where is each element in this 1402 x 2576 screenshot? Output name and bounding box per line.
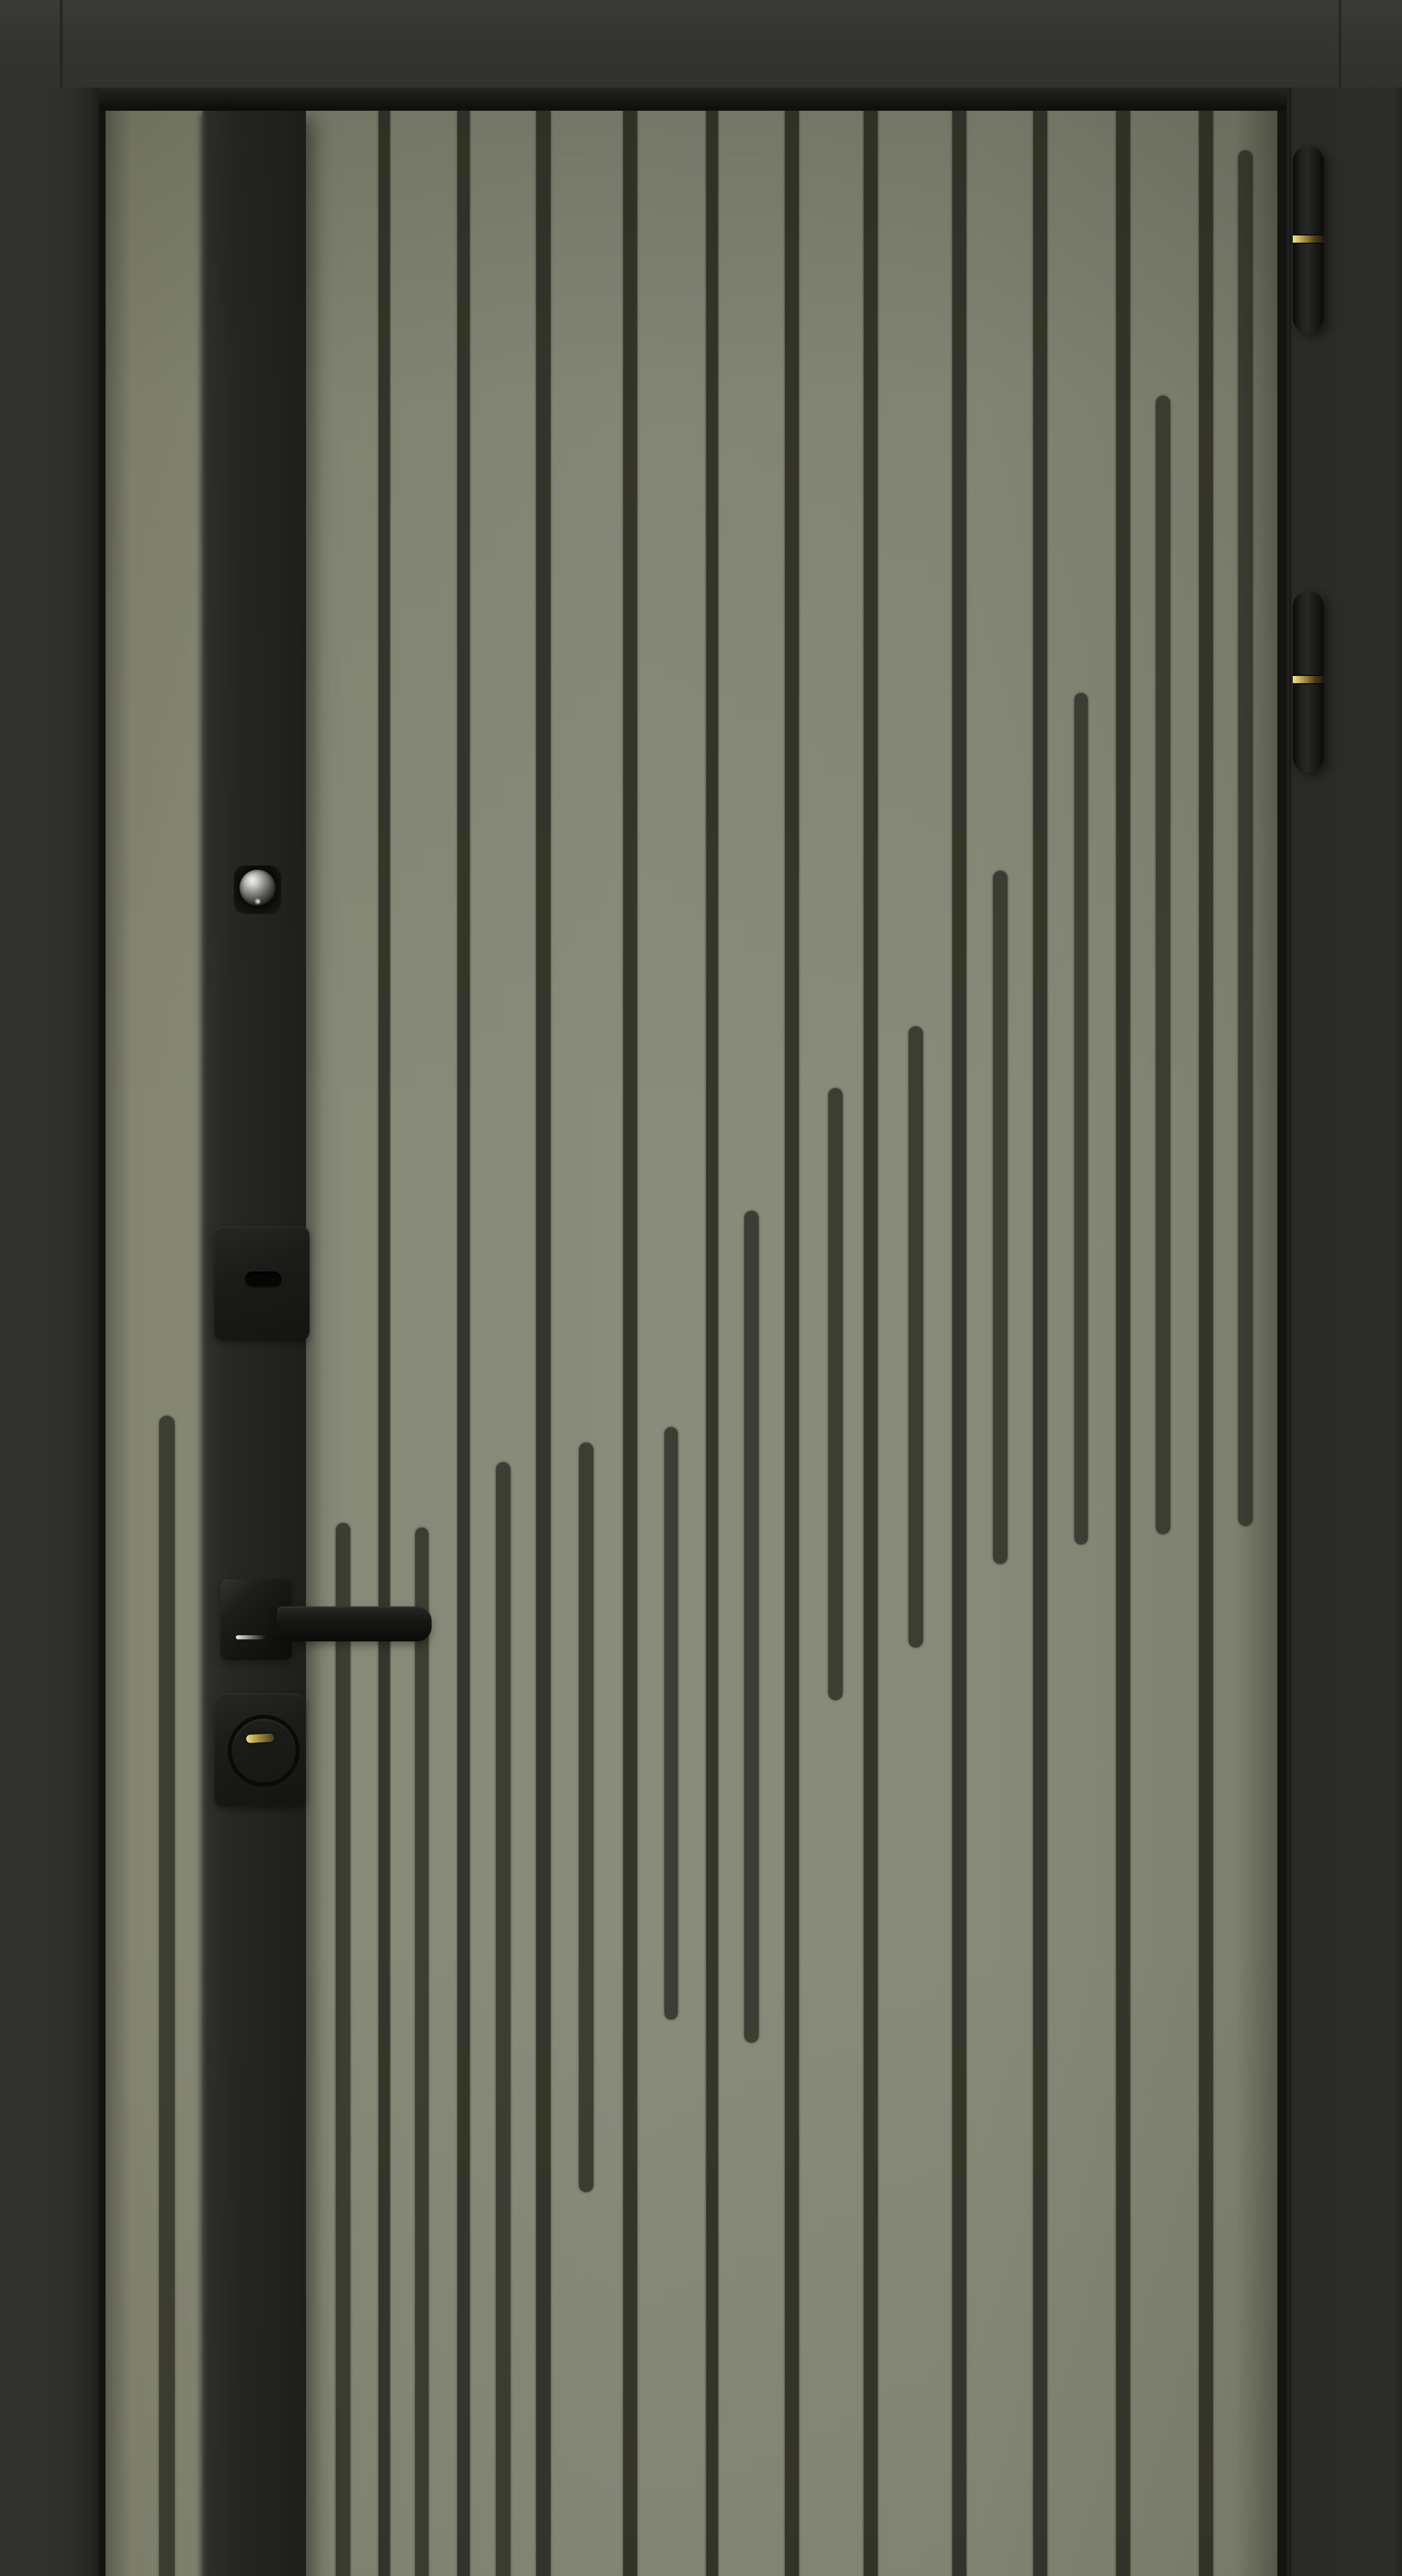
door-hinge xyxy=(1293,591,1324,773)
leaf-milled-slot xyxy=(1156,396,1170,1534)
leaf-milled-slot xyxy=(159,1416,175,2576)
door-frame-head xyxy=(0,0,1402,88)
peephole-glint xyxy=(254,898,262,905)
leaf-milled-slot xyxy=(828,1088,843,1700)
leaf-milled-slot xyxy=(664,1427,678,2020)
frame-miter-seam-right xyxy=(1339,0,1341,88)
leaf-milled-slot xyxy=(579,1443,593,2192)
hinge-brass-ring xyxy=(1293,234,1324,244)
door-lever-handle xyxy=(277,1606,432,1641)
door-product-photo xyxy=(0,0,1402,2576)
door-hinge xyxy=(1293,146,1324,333)
frame-miter-seam-left xyxy=(60,0,63,88)
leaf-groove xyxy=(623,111,637,2576)
leaf-milled-slot xyxy=(993,871,1007,1564)
leaf-milled-slot xyxy=(1074,693,1088,1545)
door-frame-jamb-right xyxy=(1287,88,1402,2576)
leaf-groove xyxy=(864,111,878,2576)
leaf-groove xyxy=(1033,111,1047,2576)
leaf-milled-slot xyxy=(744,1211,759,2043)
cylinder-lock-ring xyxy=(228,1715,300,1787)
door-gap-left xyxy=(99,111,106,2576)
leaf-milled-slot xyxy=(496,1462,510,2576)
leaf-groove xyxy=(952,111,966,2576)
leaf-groove xyxy=(706,111,718,2576)
leaf-milled-slot xyxy=(909,1026,923,1648)
keyhole-slot xyxy=(245,1272,282,1288)
cylinder-key-slot xyxy=(246,1734,275,1743)
leaf-groove xyxy=(457,111,470,2576)
leaf-groove xyxy=(1199,111,1213,2576)
leaf-groove xyxy=(785,111,799,2576)
frame-jamb-right-seam xyxy=(1289,88,1291,2576)
door-gap-right xyxy=(1277,111,1287,2576)
frame-rebate-shadow xyxy=(99,88,1287,111)
leaf-groove xyxy=(379,111,390,2576)
leaf-milled-slot xyxy=(415,1528,429,2576)
leaf-groove xyxy=(536,111,551,2576)
hinge-brass-ring xyxy=(1293,675,1324,684)
hardware-strip xyxy=(202,111,306,2576)
door-frame-jamb-left xyxy=(0,88,99,2576)
leaf-milled-slot xyxy=(1238,150,1253,1526)
leaf-groove xyxy=(1116,111,1130,2576)
leaf-milled-slot xyxy=(336,1523,350,2576)
door-leaf xyxy=(106,111,1277,2576)
handle-glint xyxy=(236,1635,266,1639)
